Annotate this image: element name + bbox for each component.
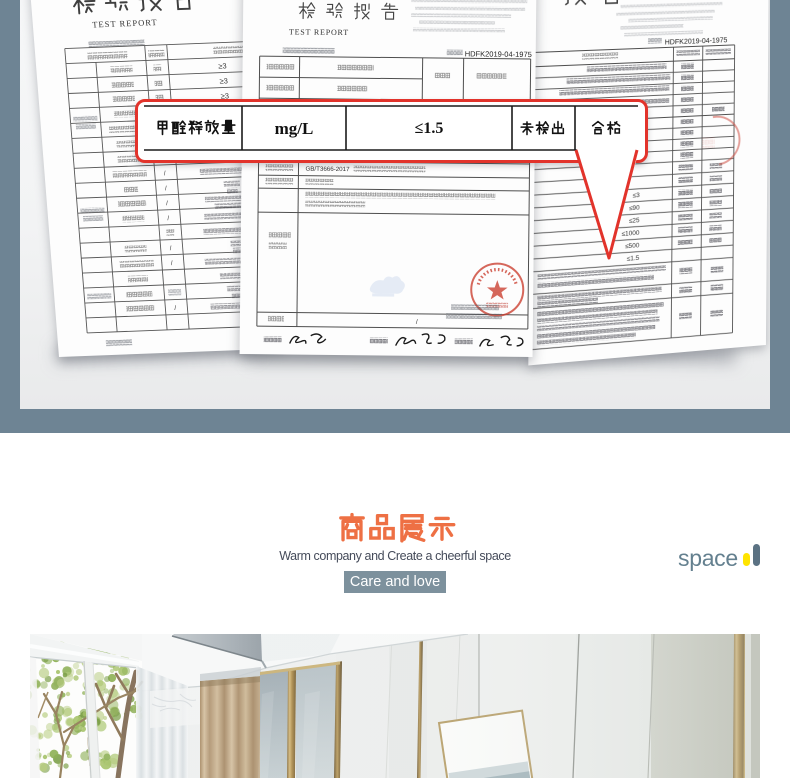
svg-text:TEST REPORT: TEST REPORT	[289, 27, 349, 37]
svg-text:HDFK2019-04-1975: HDFK2019-04-1975	[665, 35, 728, 46]
svg-text:mg/L: mg/L	[275, 119, 314, 138]
svg-text:≤1.5: ≤1.5	[415, 120, 444, 137]
svg-text:TEST REPORT: TEST REPORT	[92, 17, 158, 29]
svg-text:≥3: ≥3	[218, 61, 227, 70]
svg-text:/: /	[174, 305, 177, 312]
svg-text:HDFK2019-04-1975: HDFK2019-04-1975	[465, 49, 532, 59]
svg-text:≥3: ≥3	[219, 76, 228, 85]
svg-text:/: /	[416, 319, 418, 326]
